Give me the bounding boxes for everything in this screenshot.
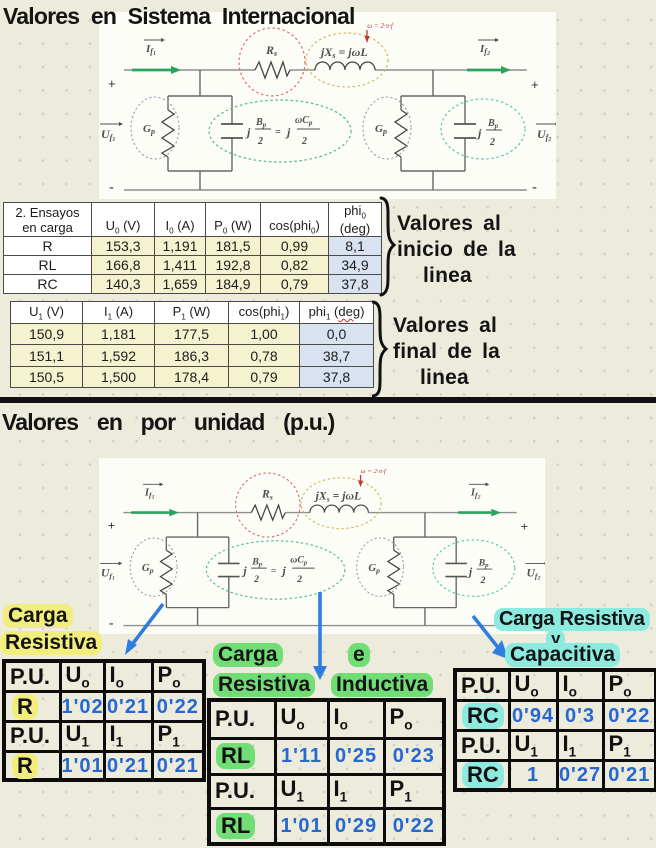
svg-text:2: 2 bbox=[257, 136, 263, 147]
svg-text:=: = bbox=[275, 127, 281, 138]
svg-text:ω = 2·π·f: ω = 2·π·f bbox=[367, 22, 394, 30]
svg-text:+: + bbox=[108, 76, 116, 91]
svg-text:-: - bbox=[109, 179, 114, 196]
svg-text:jXs = jωL: jXs = jωL bbox=[319, 45, 368, 60]
svg-text:2: 2 bbox=[301, 136, 307, 147]
svg-text:+: + bbox=[531, 77, 539, 92]
svg-text:2: 2 bbox=[489, 137, 495, 148]
svg-text:-: - bbox=[532, 179, 537, 196]
